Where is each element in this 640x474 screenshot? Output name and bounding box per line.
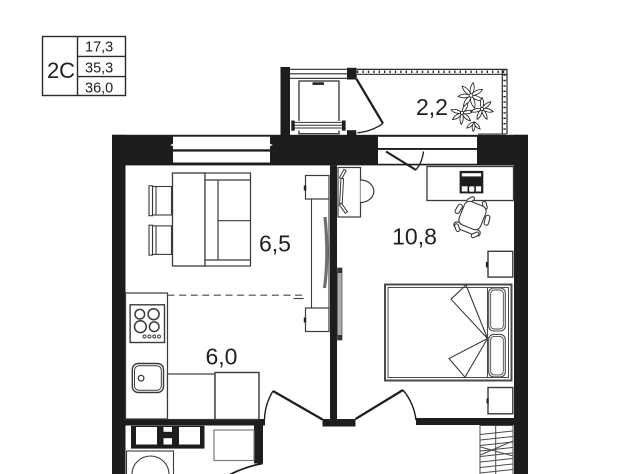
svg-text:17,3: 17,3 <box>85 39 113 55</box>
svg-text:36,0: 36,0 <box>85 81 113 97</box>
svg-text:6,5: 6,5 <box>259 231 291 257</box>
svg-text:2,2: 2,2 <box>416 94 448 120</box>
svg-text:10,8: 10,8 <box>392 224 437 250</box>
svg-text:2С: 2С <box>47 58 75 83</box>
svg-text:6,0: 6,0 <box>206 344 238 370</box>
svg-text:35,3: 35,3 <box>85 60 113 76</box>
